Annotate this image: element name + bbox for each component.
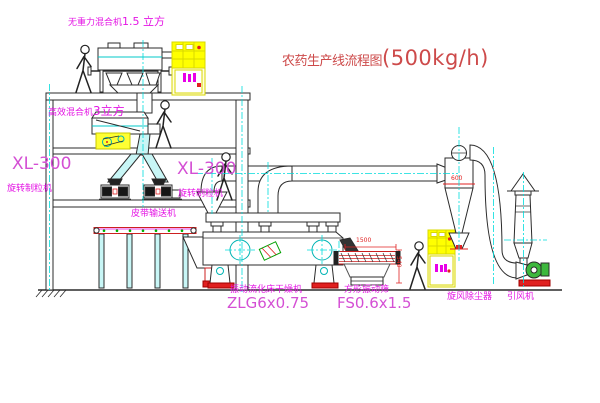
- label-high-efficiency-mixer: 高效混合机3立方: [48, 105, 125, 118]
- dimension-screen-height: 540: [395, 256, 401, 267]
- fluid-bed-dryer: [203, 213, 360, 288]
- label-gravity-free-mixer: 无重力混合机1.5 立方: [68, 16, 165, 28]
- process-flow-diagram: 农药生产线流程图(500kg/h) 无重力混合机1.5 立方 高效混合机3立方 …: [0, 0, 600, 403]
- title-text: 农药生产线流程图: [282, 54, 382, 69]
- label-screen-model: FS0.6x1.5: [337, 296, 411, 311]
- y-duct: [108, 154, 168, 182]
- drawing-title: 农药生产线流程图(500kg/h): [282, 48, 489, 69]
- label-dryer-model: ZLG6x0.75: [227, 296, 309, 311]
- label-granulator-right-model: XL-300: [177, 161, 236, 178]
- label-cyclone: 旋风除尘器: [447, 293, 492, 302]
- dimension-screen-length: 1500: [356, 238, 371, 244]
- vibrating-screen: [334, 244, 403, 285]
- granulator-left: [99, 179, 131, 200]
- control-cabinet-1: [172, 42, 205, 95]
- dimension-cyclone: 600: [451, 176, 462, 182]
- induced-draft-fan: [516, 262, 550, 286]
- label-granulator-left-model: XL-300: [12, 156, 71, 173]
- label-granulator-left-name: 旋转制粒机: [7, 185, 52, 194]
- title-capacity: (500kg/h): [382, 46, 489, 70]
- belt-conveyor: [94, 228, 196, 289]
- label-fan: 引风机: [507, 293, 534, 302]
- exhaust-stack: [507, 174, 539, 267]
- label-belt-conveyor: 皮带输送机: [131, 210, 176, 219]
- granulator-right: [142, 179, 182, 200]
- label-granulator-right-name: 旋转制粒机: [178, 190, 223, 199]
- worker-ground: [410, 242, 425, 289]
